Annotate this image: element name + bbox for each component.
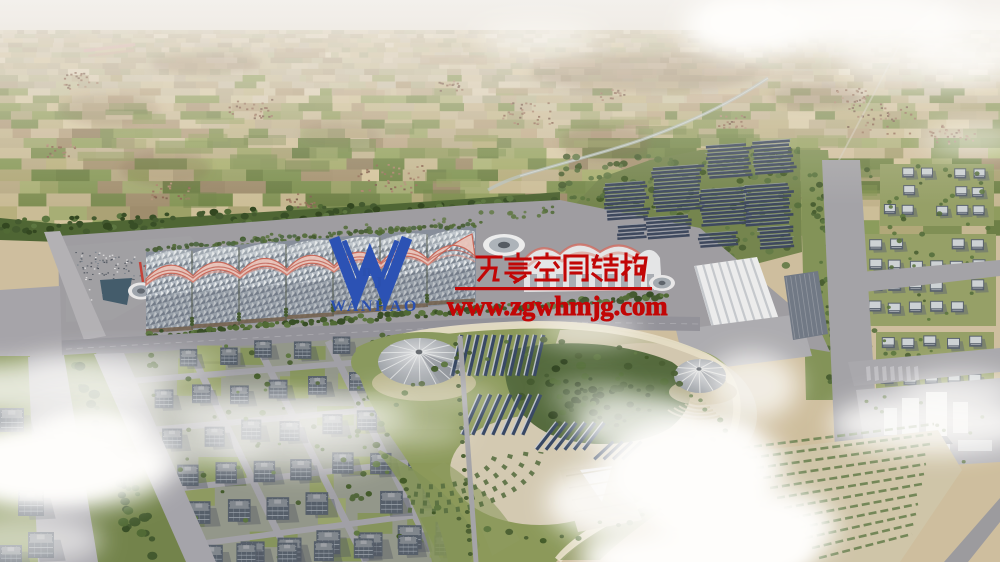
svg-text:n: n — [362, 261, 372, 280]
svg-text:WANHAO: WANHAO — [330, 298, 419, 315]
svg-text:www.zgwhmjg.com: www.zgwhmjg.com — [447, 291, 668, 321]
svg-text:J: J — [374, 273, 383, 292]
